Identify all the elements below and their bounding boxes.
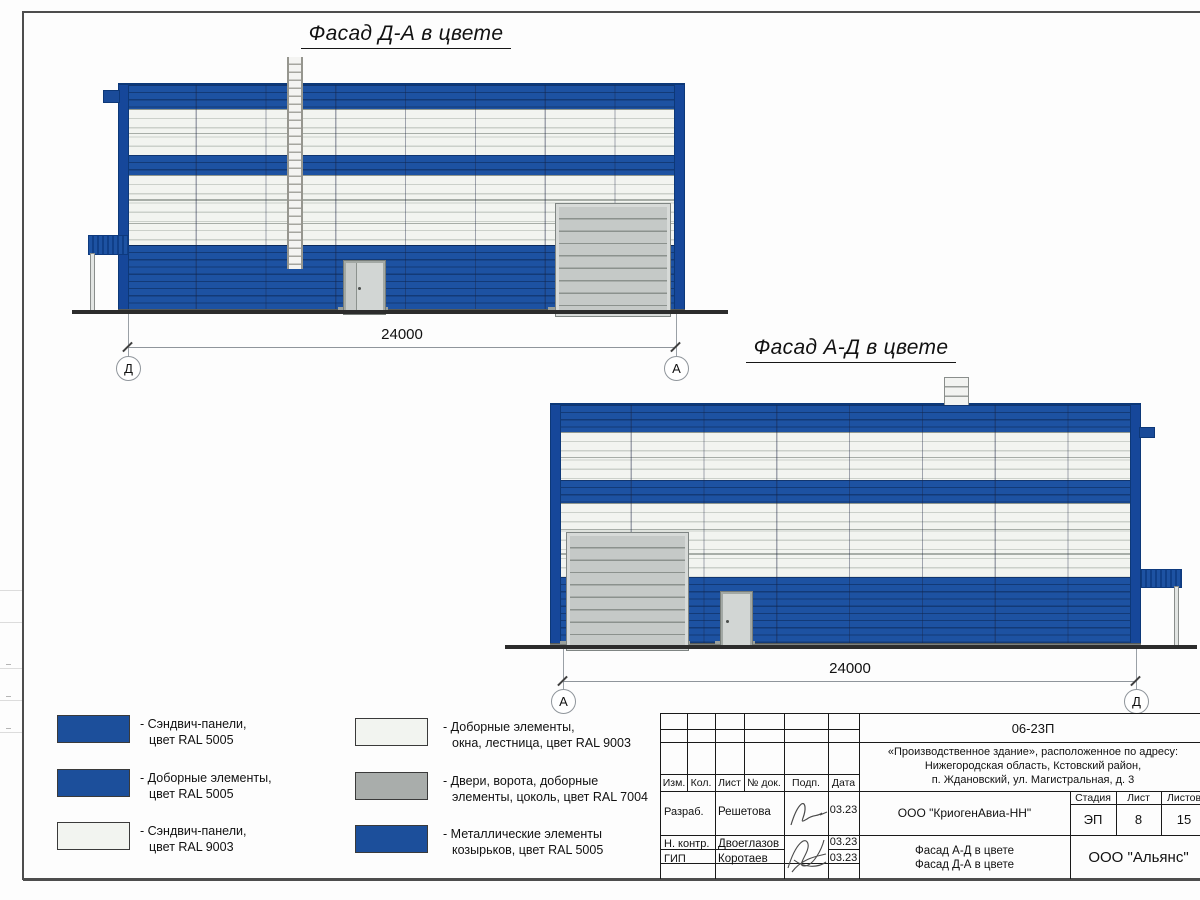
ladder (287, 57, 303, 269)
border-line (661, 729, 859, 730)
axis-marker-a: А (551, 689, 576, 714)
entrance-door (344, 261, 385, 314)
facade-ad-view (550, 403, 1141, 647)
margin-line (0, 732, 22, 733)
signature (787, 795, 829, 833)
sandwich-panel-band (127, 155, 676, 177)
border-line (828, 849, 859, 850)
sectional-gate (556, 204, 670, 316)
facade-da-view (118, 83, 685, 313)
col-header-izm: Изм. (661, 774, 687, 791)
margin-line (0, 622, 22, 623)
sheets-label: Листов (1161, 791, 1200, 804)
doc-number: 06-23П (859, 714, 1200, 742)
dimension-label: 24000 (790, 660, 910, 677)
title-block: Изм. Кол. Лист № док. Подп. Дата Разраб.… (660, 713, 1200, 879)
panel-joint (559, 457, 1132, 458)
col-header-kol: Кол. (687, 774, 715, 791)
panel-joint (127, 199, 676, 200)
roof-vent (944, 377, 969, 407)
sheet-value: 8 (1116, 804, 1161, 835)
ground-line (505, 645, 1197, 649)
extension-line (676, 314, 677, 358)
panel-joint (127, 133, 676, 134)
col-header-podp: Подп. (784, 774, 828, 791)
sectional-gate (567, 533, 688, 650)
axis-marker-d: Д (1124, 689, 1149, 714)
sandwich-panel-band (559, 405, 1132, 434)
legend-label: - Сэндвич-панели,цвет RAL 9003 (140, 824, 246, 855)
sandwich-panel-band (559, 480, 1132, 505)
sandwich-panel-band (127, 85, 676, 111)
sheets-value: 15 (1161, 804, 1200, 835)
role-cell: Н. контр. (664, 838, 709, 850)
frame-left-line (22, 11, 24, 880)
sandwich-panel-band (559, 432, 1132, 482)
stage-label: Стадия (1070, 791, 1116, 804)
legend-swatch (355, 718, 428, 746)
canopy (88, 235, 129, 255)
drawing-title: Фасад А-Д в цвете Фасад Д-А в цвете (859, 844, 1070, 872)
dimension-label: 24000 (342, 326, 462, 343)
dimension-line (128, 347, 676, 348)
extension-line (563, 649, 564, 691)
legend-swatch (355, 825, 428, 853)
facade-ad-title: Фасад А-Д в цвете (695, 336, 1007, 363)
extension-line (128, 314, 129, 358)
company-name: ООО "Альянс" (1070, 835, 1200, 879)
role-cell: ГИП (664, 853, 686, 865)
door-leaf (346, 263, 357, 312)
margin-line (0, 700, 22, 701)
col-header-data: Дата (828, 774, 859, 791)
canopy-post (1174, 586, 1179, 647)
date-cell: 03.23 (828, 802, 859, 818)
legend-swatch (355, 772, 428, 800)
margin-mark (6, 664, 11, 665)
legend-swatch (57, 822, 130, 850)
margin-mark (6, 696, 11, 697)
canopy-post (90, 253, 95, 313)
legend-label: - Металлические элементыкозырьков, цвет … (443, 827, 603, 858)
legend-label: - Двери, ворота, доборныеэлементы, цокол… (443, 774, 648, 805)
border-line (661, 742, 1200, 743)
axis-marker-a: А (664, 356, 689, 381)
door-handle (358, 287, 361, 290)
margin-line (0, 668, 22, 669)
border-line (715, 714, 716, 879)
role-cell: Разраб. (664, 806, 704, 818)
roof-edge-tab (1139, 427, 1155, 438)
sheet-label: Лист (1116, 791, 1161, 804)
name-cell: Решетова (718, 806, 771, 818)
drawing-sheet: Фасад Д-А в цвете 24000 Д (0, 0, 1200, 900)
ground-line (72, 310, 728, 314)
legend-label: - Сэндвич-панели,цвет RAL 5005 (140, 717, 246, 748)
legend-label: - Доборные элементы,окна, лестница, цвет… (443, 720, 631, 751)
legend-label: - Доборные элементы,цвет RAL 5005 (140, 771, 272, 802)
stage-value: ЭП (1070, 804, 1116, 835)
corner-pilaster (550, 405, 561, 647)
legend-swatch (57, 715, 130, 743)
margin-line (0, 590, 22, 591)
door-handle (726, 620, 729, 623)
facade-da-title: Фасад Д-А в цвете (250, 22, 562, 49)
corner-pilaster (1130, 405, 1141, 647)
extension-line (1136, 649, 1137, 691)
date-cell: 03.23 (828, 835, 859, 849)
name-cell: Двоеглазов (718, 838, 779, 850)
roof-edge-tab (103, 90, 120, 103)
sandwich-panel-band (127, 109, 676, 157)
entrance-door (721, 592, 752, 648)
signature (784, 832, 830, 876)
corner-pilaster (674, 85, 685, 313)
org-name: ООО "КриогенАвиа-НН" (859, 791, 1070, 835)
date-cell: 03.23 (828, 851, 859, 865)
margin-mark (6, 728, 11, 729)
project-address: «Производственное здание», расположенное… (859, 745, 1200, 787)
axis-marker-d: Д (116, 356, 141, 381)
legend-swatch (57, 769, 130, 797)
dimension-line (563, 681, 1136, 682)
name-cell: Коротаев (718, 853, 768, 865)
corner-pilaster (118, 85, 129, 313)
panel-joint (559, 529, 1132, 530)
col-header-doc: № док. (744, 774, 784, 791)
frame-top-line (23, 11, 1200, 13)
col-header-list: Лист (715, 774, 744, 791)
